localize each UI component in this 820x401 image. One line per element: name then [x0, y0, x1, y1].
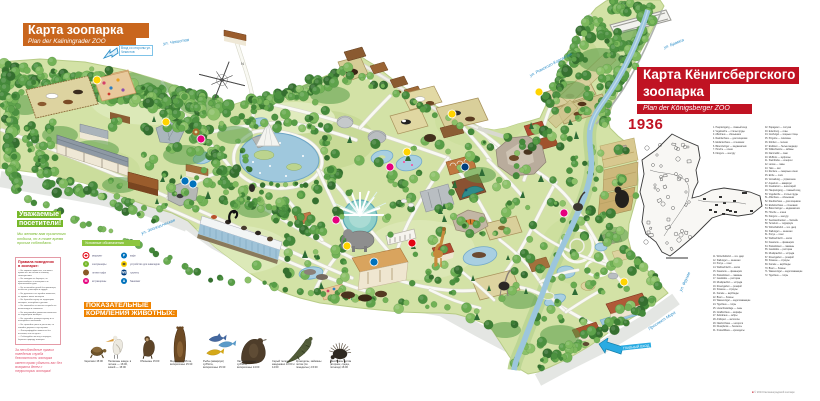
svg-text:банкомат: банкомат [130, 280, 141, 283]
svg-text:WB: WB [121, 271, 127, 275]
svg-text:аттракционы: аттракционы [92, 280, 107, 283]
svg-text:туалеты: туалеты [130, 272, 139, 275]
svg-text:N: N [241, 61, 244, 66]
svg-text:кафе: кафе [130, 255, 136, 258]
svg-text:i: i [86, 262, 87, 266]
svg-text:устройство для инвалидов: устройство для инвалидов [130, 263, 160, 266]
svg-text:медпункт: медпункт [92, 255, 103, 258]
svg-text:зоосувениры: зоосувениры [92, 263, 107, 266]
svg-text:M: M [85, 279, 88, 283]
svg-text:летнее кафе: летнее кафе [92, 272, 107, 275]
